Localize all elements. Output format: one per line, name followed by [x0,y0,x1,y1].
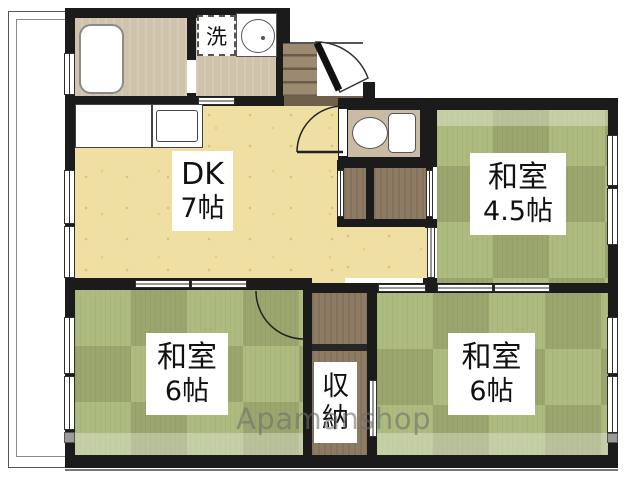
wall-segment [276,8,290,43]
shutter-box [64,432,75,443]
tatami-highlight [377,433,608,455]
fusuma-panel [135,280,190,288]
tatami-highlight [437,110,608,126]
storage-label-char1: 収 [322,371,349,403]
washitsu-6-right-label-size: 6帖 [469,376,513,408]
wall-segment [367,283,377,467]
closet-sliding-door [337,170,344,217]
shutter-box [607,433,618,443]
floor-plan: 洗 DK 7帖 和室 4.5帖 和室 6帖 和室 6帖 収 納 Apamansh… [0,0,625,480]
closet-cell [374,168,426,219]
wall-segment [363,82,375,110]
washitsu-6-right-label: 和室 6帖 [448,333,535,415]
toilet-tank [388,113,416,153]
bathroom-door-opening [187,60,196,93]
window [64,53,75,95]
dk-washitsu-sliding-door [378,284,426,292]
window [607,317,618,374]
fusuma-panel [494,284,550,292]
window [64,317,75,374]
building-baseline [65,469,618,471]
apamanshop-watermark: Apamanshop [236,402,431,436]
washbasin-drain [261,36,265,40]
window [607,376,618,433]
genkan-edge-line [283,42,363,44]
window [64,170,75,224]
toilet-bowl [352,117,388,149]
entrance-door-leaf [317,43,339,90]
washing-machine-space: 洗 [197,15,236,56]
washbasin [236,13,277,57]
washitsu-6-left-label-name: 和室 [157,340,217,375]
washroom-door [198,97,235,105]
fusuma-panel [437,284,493,292]
toilet-door-opening [339,109,347,156]
dk-label-name: DK [181,157,224,192]
washitsu-6-right-label-name: 和室 [462,340,522,375]
storage-divider [312,344,367,351]
genkan-steps [283,43,317,97]
dk-floor-extension [337,227,427,278]
wall-segment [338,98,618,110]
bathtub [79,24,124,94]
washitsu-4-5-label: 和室 4.5帖 [470,153,566,235]
kitchen-sink [156,110,198,142]
closet-sliding-door [426,170,433,217]
entrance-door-swing [316,42,368,92]
closet-cell [344,168,366,219]
wall-segment [276,43,283,96]
fusuma-panel [191,280,247,288]
window [64,376,75,430]
washitsu-4-5-label-size: 4.5帖 [483,196,553,228]
window [607,135,618,186]
wall-segment [65,455,618,468]
balcony-inner-line [16,19,65,457]
washitsu-4-5-label-name: 和室 [488,160,548,195]
counter-divider [151,104,153,148]
dk-washitsu-sliding-door [427,227,435,278]
window [64,226,75,278]
washing-machine-label: 洗 [206,21,227,51]
washitsu-6-left-label-size: 6帖 [165,376,209,408]
wall-segment [303,278,312,467]
window [607,188,618,245]
washbasin-bowl [241,19,275,53]
dk-label: DK 7帖 [172,151,233,231]
tatami-highlight [75,433,303,455]
washitsu-6-left-label: 和室 6帖 [146,333,228,415]
dk-label-size: 7帖 [180,193,224,225]
